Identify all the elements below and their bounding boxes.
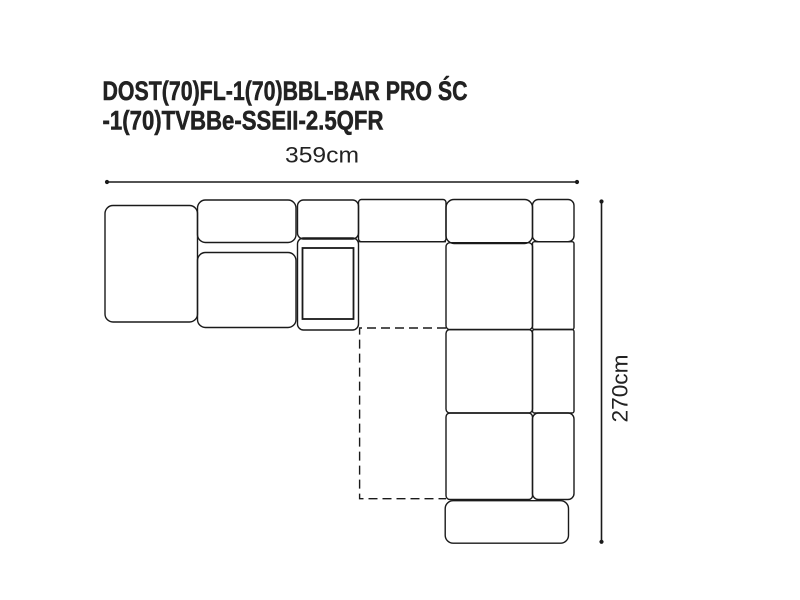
svg-text:DOST(70)FL-1(70)BBL-BAR PRO ŚC: DOST(70)FL-1(70)BBL-BAR PRO ŚC <box>103 75 468 106</box>
svg-text:-1(70)TVBBe-SSEII-2.5QFR: -1(70)TVBBe-SSEII-2.5QFR <box>103 106 384 136</box>
svg-text:359cm: 359cm <box>285 143 359 168</box>
svg-text:270cm: 270cm <box>608 355 633 423</box>
